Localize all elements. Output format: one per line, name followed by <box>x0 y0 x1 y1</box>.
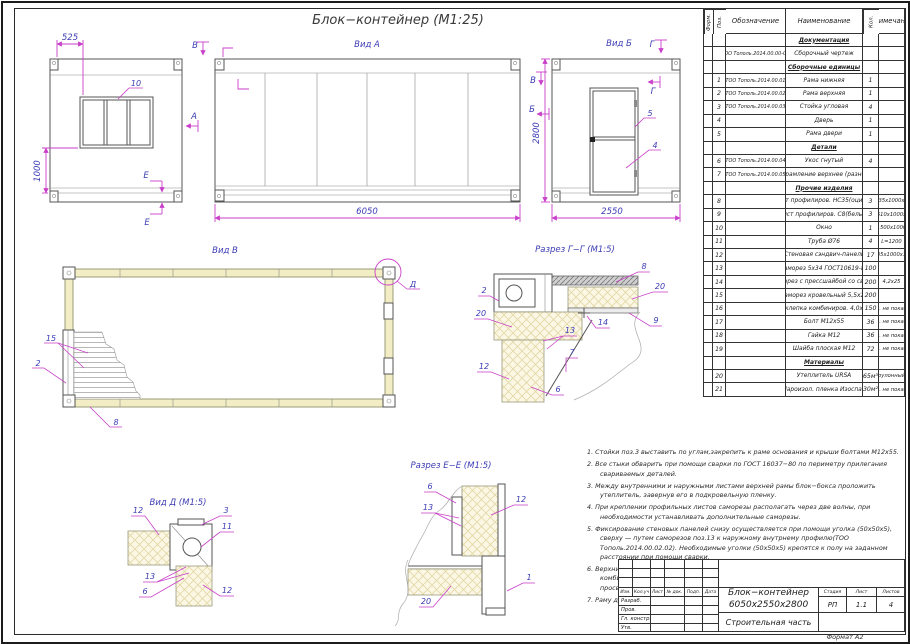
tb-sign-prov: Пров. <box>619 606 651 615</box>
spec-cell: Дверь <box>786 115 863 128</box>
spec-cell <box>713 34 726 47</box>
spec-cell <box>704 236 713 249</box>
spec-cell <box>863 47 879 60</box>
spec-cell: 36 <box>863 316 879 329</box>
spec-header-row: Форм. Поз. Обозначение Наименование Кол.… <box>704 9 905 34</box>
spec-cell <box>726 289 786 302</box>
profiled-sheet-cutout <box>74 332 140 399</box>
spec-cell <box>726 249 786 262</box>
section-gg-title: Разрез Г−Г (М1:5) <box>535 245 615 255</box>
callout-c3: 3 <box>223 506 228 515</box>
note-item: 5. Фиксирование стеновых панелей снизу о… <box>587 525 905 562</box>
tb-rev-doc: № док. <box>665 588 685 597</box>
spec-cell: 1 <box>863 222 879 235</box>
spec-cell: ТОО Тополь.2014.00.02 <box>726 88 786 101</box>
spec-cell: 5935х1000х35 <box>879 195 905 208</box>
callout-c2: 2 <box>35 359 40 368</box>
spec-cell: Сборочные единицы <box>786 61 863 74</box>
spec-cell: Лист профилиров. НС35(оцинк.) <box>786 195 863 208</box>
spec-row: 6ТОО Тополь.2014.00.04Укос гнутый4 <box>704 155 905 168</box>
spec-cell <box>704 222 713 235</box>
tube <box>183 538 201 556</box>
tb-sign-utv: Утв. <box>619 624 651 632</box>
bottom-channel <box>482 556 505 614</box>
spec-cell: 1 <box>863 115 879 128</box>
spec-cell <box>726 61 786 74</box>
spec-row: Детали <box>704 142 905 155</box>
spec-cell <box>704 276 713 289</box>
callout-c9: 9 <box>653 316 658 325</box>
spec-row: Материалы <box>704 357 905 370</box>
spec-row: 15Саморез кровельный 5,5х25200 <box>704 289 905 302</box>
spec-body: ДокументацияТОО Тополь.2014.00.00-СБСбор… <box>704 34 905 397</box>
spec-cell <box>704 195 713 208</box>
callout-c10: 10 <box>131 79 141 88</box>
svg-text:1000: 1000 <box>33 160 43 182</box>
spec-cell: 200 <box>863 276 879 289</box>
spec-row: Прочие изделия <box>704 182 905 195</box>
spec-row: 3ТОО Тополь.2014.00.03Стойка угловая4 <box>704 101 905 114</box>
spec-row: 17Болт М12х5536усл. не показан <box>704 316 905 329</box>
spec-cell: ТОО Тополь.2014.00.00-СБ <box>726 47 786 60</box>
spec-cell: 8 <box>713 195 726 208</box>
spec-cell: Сборочный чертеж <box>786 47 863 60</box>
spec-cell <box>726 316 786 329</box>
callout-c15: 15 <box>46 334 56 343</box>
spec-cell <box>863 168 879 181</box>
spec-cell: Саморез кровельный 5,5х25 <box>786 289 863 302</box>
view-marker-b: Б <box>529 105 549 120</box>
tb-rev-koluch: Кол.уч <box>633 588 651 597</box>
spec-cell <box>879 168 905 181</box>
spec-row: 21Пароизол. пленка Изоспан30м²усл. не по… <box>704 383 905 396</box>
spec-cell <box>726 209 786 222</box>
spec-cell: 2435х1000х100 <box>879 249 905 262</box>
spec-cell: Прочие изделия <box>786 182 863 195</box>
spec-row: 1ТОО Тополь.2014.00.01Рама нижняя1 <box>704 74 905 87</box>
spec-cell <box>704 34 713 47</box>
spec-cell: 11 <box>713 236 726 249</box>
callout-c12a: 12 <box>133 506 143 515</box>
view-marker-v: В <box>192 41 209 55</box>
view-marker-a: А <box>186 112 198 132</box>
spec-cell <box>704 316 713 329</box>
callout-c11: 11 <box>222 522 232 531</box>
spec-cell <box>726 222 786 235</box>
section-gg: Разрез Г−Г (М1:5) <box>494 245 641 402</box>
spec-cell: Рама нижняя <box>786 74 863 87</box>
roof-sheet <box>552 276 638 285</box>
sandwich-panel-v <box>176 566 212 606</box>
spec-cell <box>726 357 786 370</box>
spec-cell: 21 <box>713 383 726 396</box>
spec-cell: 72 <box>863 343 879 356</box>
callout-c14: 14 <box>598 318 608 327</box>
door-hinge <box>634 170 637 177</box>
tb-doc-name: Блок−контейнер 6050х2550х2800 <box>719 588 819 613</box>
spec-cell <box>879 61 905 74</box>
spec-cell: 5 <box>713 128 726 141</box>
spec-cell: ТОО Тополь.2014.00.05 <box>726 168 786 181</box>
spec-cell: Стеновая сэндвич-панель <box>786 249 863 262</box>
spec-cell <box>713 357 726 370</box>
callout-c1: 1 <box>526 573 531 582</box>
view-rear-elevation: 525 1000 В А Е <box>33 33 209 228</box>
callout-c20: 20 <box>421 597 431 606</box>
spec-cell <box>704 357 713 370</box>
spec-cell: ТОО Тополь.2014.00.04 <box>726 155 786 168</box>
spec-cell: 200 <box>863 289 879 302</box>
leader-line <box>397 281 420 289</box>
spec-cell <box>863 34 879 47</box>
spec-cell <box>704 262 713 275</box>
spec-cell <box>726 182 786 195</box>
tb-sheets-value: 4 <box>877 597 905 613</box>
spec-cell <box>704 168 713 181</box>
spec-cell <box>879 115 905 128</box>
callout-c12b: 12 <box>222 586 232 595</box>
tb-doc-line1: Блок−контейнер <box>728 588 809 600</box>
spec-cell <box>726 142 786 155</box>
callout-c6: 6 <box>555 385 560 394</box>
corner-bracket <box>223 48 233 57</box>
spec-cell <box>713 61 726 74</box>
svg-text:Е: Е <box>143 171 149 181</box>
callout-c4: 4 <box>652 141 657 150</box>
svg-text:6050: 6050 <box>356 207 378 217</box>
spec-header-form: Форм. <box>704 9 713 34</box>
roof-insulation <box>568 287 638 308</box>
spec-cell: Гайка М12 <box>786 330 863 343</box>
spec-cell <box>863 61 879 74</box>
spec-cell <box>704 88 713 101</box>
spec-cell: 17 <box>713 316 726 329</box>
wall-bracket <box>384 303 393 319</box>
spec-cell: Укос гнутый <box>786 155 863 168</box>
view-v-plan: Вид В <box>63 246 401 407</box>
svg-text:2550: 2550 <box>601 207 623 217</box>
spec-cell: усл. не показан <box>879 383 905 396</box>
spec-row: 18Гайка М1236усл. не показан <box>704 330 905 343</box>
spec-row: 4Дверь1 <box>704 115 905 128</box>
sheet-title: Блок−контейнер (М1:25) <box>312 13 484 28</box>
spec-cell: 14 <box>713 276 726 289</box>
spec-cell <box>879 289 905 302</box>
spec-cell <box>704 370 713 383</box>
callout-c20a: 20 <box>476 309 486 318</box>
spec-cell: Рама верхняя <box>786 88 863 101</box>
spec-cell <box>704 182 713 195</box>
callout-c12: 12 <box>516 495 526 504</box>
spec-cell: Утеплитель URSA <box>786 370 863 383</box>
spec-cell: 2 <box>713 88 726 101</box>
spec-cell: 7 <box>713 168 726 181</box>
corner-channel <box>63 330 74 400</box>
leader-line <box>507 583 535 591</box>
spec-header-name: Наименование <box>786 9 863 34</box>
spec-cell <box>879 101 905 114</box>
spec-cell: 19 <box>713 343 726 356</box>
spec-cell <box>879 128 905 141</box>
spec-cell <box>726 195 786 208</box>
spec-cell: усл. не показан <box>879 303 905 316</box>
spec-cell <box>726 128 786 141</box>
spec-cell <box>879 88 905 101</box>
spec-cell: 30м² <box>863 383 879 396</box>
door <box>590 88 638 195</box>
spec-cell: 4 <box>863 155 879 168</box>
spec-cell: усл. не показан <box>879 316 905 329</box>
spec-cell: 5510х1000х8 <box>879 209 905 222</box>
spec-cell <box>726 262 786 275</box>
spec-cell: 4 <box>713 115 726 128</box>
spec-cell: 100 <box>863 262 879 275</box>
spec-row: ТОО Тополь.2014.00.00-СБСборочный чертеж <box>704 47 905 60</box>
spec-row: 16Заклепка комбиниров. 4,0х12150усл. не … <box>704 303 905 316</box>
callout-c6: 6 <box>142 587 147 596</box>
spec-cell <box>726 115 786 128</box>
spec-cell: 4 <box>863 101 879 114</box>
spec-cell <box>879 74 905 87</box>
spec-cell <box>726 34 786 47</box>
spec-cell: усл. не показан <box>879 343 905 356</box>
spec-cell: 6 <box>713 155 726 168</box>
spec-cell: 15 <box>713 289 726 302</box>
tb-sheet-header: Лист <box>847 588 877 597</box>
spec-cell <box>704 47 713 60</box>
spec-cell: 16 <box>713 303 726 316</box>
spec-cell: Обрамление верхнее (разное) <box>786 168 863 181</box>
callout-c12: 12 <box>479 362 489 371</box>
specification-table: Форм. Поз. Обозначение Наименование Кол.… <box>703 8 905 397</box>
note-item: 3. Между внутренними и наружными листами… <box>587 482 905 501</box>
dim-6050: 6050 <box>215 204 520 222</box>
view-a-title: Вид А <box>354 40 380 50</box>
section-ee: Разрез Е−Е (М1:5) <box>395 461 505 626</box>
spec-row: 11Труба Ø764L=1200 <box>704 236 905 249</box>
tb-rev-list: Лист <box>651 588 665 597</box>
spec-cell: 4,2х25 <box>879 276 905 289</box>
spec-header-poz: Поз. <box>713 9 726 34</box>
spec-cell: Саморез с прессшайбой со сверл. <box>786 276 863 289</box>
spec-cell <box>704 303 713 316</box>
spec-cell: ТОО Тополь.2014.00.01 <box>726 74 786 87</box>
spec-cell <box>704 74 713 87</box>
spec-row: 20Утеплитель URSA65м³рулонный <box>704 370 905 383</box>
drawing-sheet: Блок−контейнер (М1:25) <box>0 0 910 644</box>
spec-cell: Заклепка комбиниров. 4,0х12 <box>786 303 863 316</box>
spec-cell <box>704 330 713 343</box>
callout-c20b: 20 <box>655 282 665 291</box>
spec-cell: 12 <box>713 249 726 262</box>
spec-cell <box>726 383 786 396</box>
svg-text:Е: Е <box>144 218 150 228</box>
spec-cell: Труба Ø76 <box>786 236 863 249</box>
spec-cell: усл. не показан <box>879 330 905 343</box>
svg-text:525: 525 <box>62 33 78 43</box>
spec-cell <box>704 61 713 74</box>
spec-cell: Шайба плоская М12 <box>786 343 863 356</box>
door-handle <box>590 137 595 142</box>
tb-rev-data: Дата <box>703 588 719 597</box>
spec-row: Документация <box>704 34 905 47</box>
spec-cell: 1 <box>863 88 879 101</box>
callout-c5: 5 <box>647 109 652 118</box>
svg-text:А: А <box>190 112 197 122</box>
section-marker-e-bottom: Е <box>144 203 162 228</box>
spec-row: 14Саморез с прессшайбой со сверл.2004,2х… <box>704 276 905 289</box>
spec-cell <box>704 343 713 356</box>
view-b-title: Вид Б <box>606 39 632 49</box>
spec-header-oboz: Обозначение <box>726 9 786 34</box>
spec-cell <box>726 370 786 383</box>
spec-row: 9Лист профилиров. С8(белый)35510х1000х8 <box>704 209 905 222</box>
spec-cell <box>879 47 905 60</box>
callout-c8: 8 <box>641 262 646 271</box>
svg-text:В: В <box>192 41 198 51</box>
view-v-title: Вид В <box>212 246 238 256</box>
view-marker-v2: В <box>530 72 547 86</box>
spec-cell: 9 <box>713 209 726 222</box>
spec-row: 5Рама двери1 <box>704 128 905 141</box>
spec-cell: L=1200 <box>879 236 905 249</box>
spec-cell <box>863 142 879 155</box>
spec-cell <box>713 142 726 155</box>
spec-cell <box>879 262 905 275</box>
spec-cell <box>704 142 713 155</box>
view-d-title: Вид Д (М1:5) <box>150 498 207 508</box>
tb-rev-podp: Подп. <box>685 588 703 597</box>
wall-panel <box>502 340 544 402</box>
floor-insulation <box>408 569 482 595</box>
spec-cell <box>704 209 713 222</box>
callout-d: Д <box>409 280 416 289</box>
spec-cell: Детали <box>786 142 863 155</box>
section-ee-title: Разрез Е−Е (М1:5) <box>411 461 492 471</box>
spec-cell <box>713 47 726 60</box>
spec-cell <box>704 383 713 396</box>
format-label: Формат А2 <box>790 633 900 641</box>
section-marker-g-top: Г <box>650 40 667 53</box>
svg-text:Б: Б <box>529 105 535 115</box>
spec-cell: Окно <box>786 222 863 235</box>
tb-doc-line2: 6050х2550х2800 <box>729 600 808 612</box>
callout-c13: 13 <box>145 572 155 581</box>
view-a-front-elevation: Вид А 6050 <box>215 40 520 222</box>
spec-cell: 1500х1000 <box>879 222 905 235</box>
spec-row: 19Шайба плоская М1272усл. не показан <box>704 343 905 356</box>
spec-cell: Документация <box>786 34 863 47</box>
spec-cell <box>879 182 905 195</box>
spec-cell <box>726 303 786 316</box>
callout-c6: 6 <box>427 482 432 491</box>
spec-cell: ТОО Тополь.2014.00.03 <box>726 101 786 114</box>
spec-cell <box>704 128 713 141</box>
view-b-end-elevation: Вид Б Г <box>529 39 680 222</box>
spec-cell: 4 <box>863 236 879 249</box>
svg-text:2800: 2800 <box>532 122 542 144</box>
spec-cell <box>726 276 786 289</box>
tb-rev-izm: Изм. <box>619 588 633 597</box>
spec-row: 10Окно11500х1000 <box>704 222 905 235</box>
callout-c8: 8 <box>113 418 118 427</box>
spec-cell <box>704 155 713 168</box>
tb-sign-razrab: Разраб. <box>619 597 651 606</box>
spec-cell: 1 <box>863 128 879 141</box>
spec-cell <box>704 115 713 128</box>
spec-cell: Лист профилиров. С8(белый) <box>786 209 863 222</box>
tb-stage-header: Стадия <box>819 588 847 597</box>
spec-cell: 20 <box>713 370 726 383</box>
spec-cell <box>879 155 905 168</box>
spec-cell: 3 <box>863 209 879 222</box>
wall-bracket <box>384 358 393 374</box>
spec-row: Сборочные единицы <box>704 61 905 74</box>
spec-cell: 1 <box>863 74 879 87</box>
tb-sheet-value: 1.1 <box>847 597 877 613</box>
spec-row: 12Стеновая сэндвич-панель172435х1000х100 <box>704 249 905 262</box>
spec-cell <box>713 182 726 195</box>
note-item: 1. Стойки поз.3 выставить по углам,закре… <box>587 448 905 457</box>
spec-cell: Стойка угловая <box>786 101 863 114</box>
svg-text:В: В <box>530 76 536 86</box>
wall-panel <box>462 486 498 556</box>
spec-cell <box>726 343 786 356</box>
spec-cell <box>704 289 713 302</box>
spec-header-note: Примечание <box>879 9 905 34</box>
spec-cell <box>726 236 786 249</box>
spec-cell <box>863 357 879 370</box>
dim-2550: 2550 <box>552 204 680 222</box>
spec-cell: Болт М12х55 <box>786 316 863 329</box>
spec-cell <box>704 249 713 262</box>
spec-cell <box>879 34 905 47</box>
tb-sheets-header: Листов <box>877 588 905 597</box>
note-item: 4. При креплении профильных листов самор… <box>587 503 905 522</box>
spec-cell: рулонный <box>879 370 905 383</box>
spec-cell <box>704 101 713 114</box>
svg-text:Г: Г <box>650 40 656 50</box>
title-block: Изм. Кол.уч Лист № док. Подп. Дата Разра… <box>618 559 905 632</box>
callout-c2: 2 <box>481 286 486 295</box>
spec-cell: Пароизол. пленка Изоспан <box>786 383 863 396</box>
tb-sign-glkonstr: Гл. констр. <box>619 615 651 624</box>
spec-cell: 17 <box>863 249 879 262</box>
spec-cell <box>863 182 879 195</box>
spec-cell <box>879 142 905 155</box>
spec-cell: 3 <box>713 101 726 114</box>
spec-cell: 36 <box>863 330 879 343</box>
spec-cell: 10 <box>713 222 726 235</box>
spec-cell: 65м³ <box>863 370 879 383</box>
note-item: 2. Все стыки обварить при помощи сварки … <box>587 460 905 479</box>
spec-cell: 13 <box>713 262 726 275</box>
spec-row: 13Саморез 5х34 ГОСТ10619-80100 <box>704 262 905 275</box>
spec-row: 2ТОО Тополь.2014.00.02Рама верхняя1 <box>704 88 905 101</box>
spec-cell <box>726 330 786 343</box>
spec-cell: 3 <box>863 195 879 208</box>
spec-cell: Материалы <box>786 357 863 370</box>
door-hinge <box>634 100 637 107</box>
leader-line <box>32 368 66 383</box>
spec-header-qty: Кол. <box>863 9 879 34</box>
callout-c13: 13 <box>423 503 433 512</box>
tb-stage-value: РП <box>819 597 847 613</box>
spec-row: 8Лист профилиров. НС35(оцинк.)35935х1000… <box>704 195 905 208</box>
spec-cell <box>879 357 905 370</box>
spec-row: 7ТОО Тополь.2014.00.05Обрамление верхнее… <box>704 168 905 181</box>
spec-cell: 1 <box>713 74 726 87</box>
